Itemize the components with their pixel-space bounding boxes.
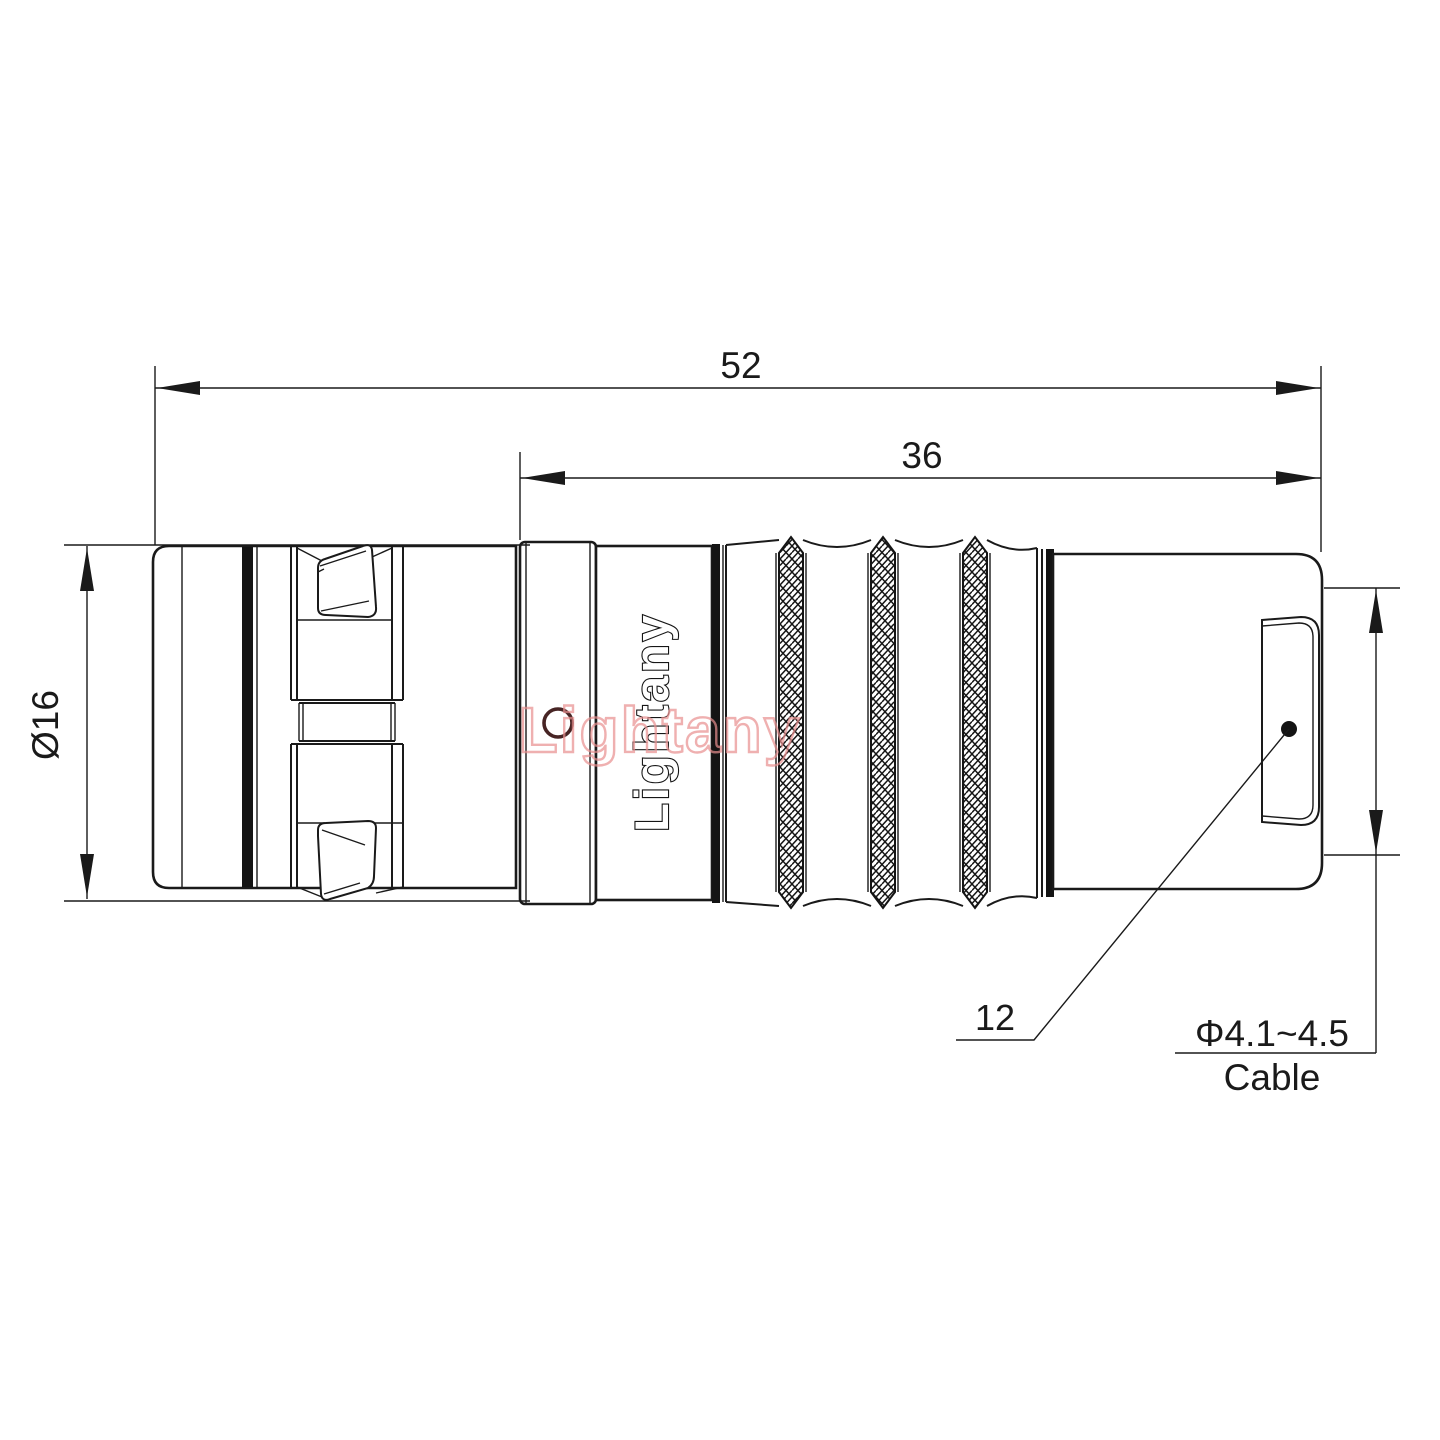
dim-label-52: 52 xyxy=(720,345,761,386)
dim-label-12: 12 xyxy=(975,997,1015,1038)
dim-label-diameter-16: Ø16 xyxy=(25,690,66,760)
dim-label-36: 36 xyxy=(901,435,942,476)
dimension-mid-length: 36 xyxy=(520,435,1321,540)
brand-watermark: Lightany xyxy=(519,694,802,766)
technical-drawing-page: Lightany xyxy=(0,0,1440,1440)
knurl-band xyxy=(868,537,898,908)
front-shell xyxy=(153,545,516,900)
cable-entry-cutout xyxy=(1262,617,1319,825)
connector-drawing: Lightany xyxy=(0,0,1440,1440)
cable-diameter-label: Φ4.1~4.5 xyxy=(1195,1013,1349,1054)
rear-body xyxy=(1053,554,1322,889)
dimension-overall-length: 52 xyxy=(155,345,1321,552)
front-shell-dark-ring xyxy=(242,547,253,887)
cable-word-label: Cable xyxy=(1224,1057,1321,1098)
knurl-band xyxy=(960,537,990,908)
bayonet-lug-bottom xyxy=(318,821,376,900)
dimension-rear-boot xyxy=(1324,588,1400,1053)
cable-annotation: Φ4.1~4.5 Cable xyxy=(1175,1013,1376,1098)
